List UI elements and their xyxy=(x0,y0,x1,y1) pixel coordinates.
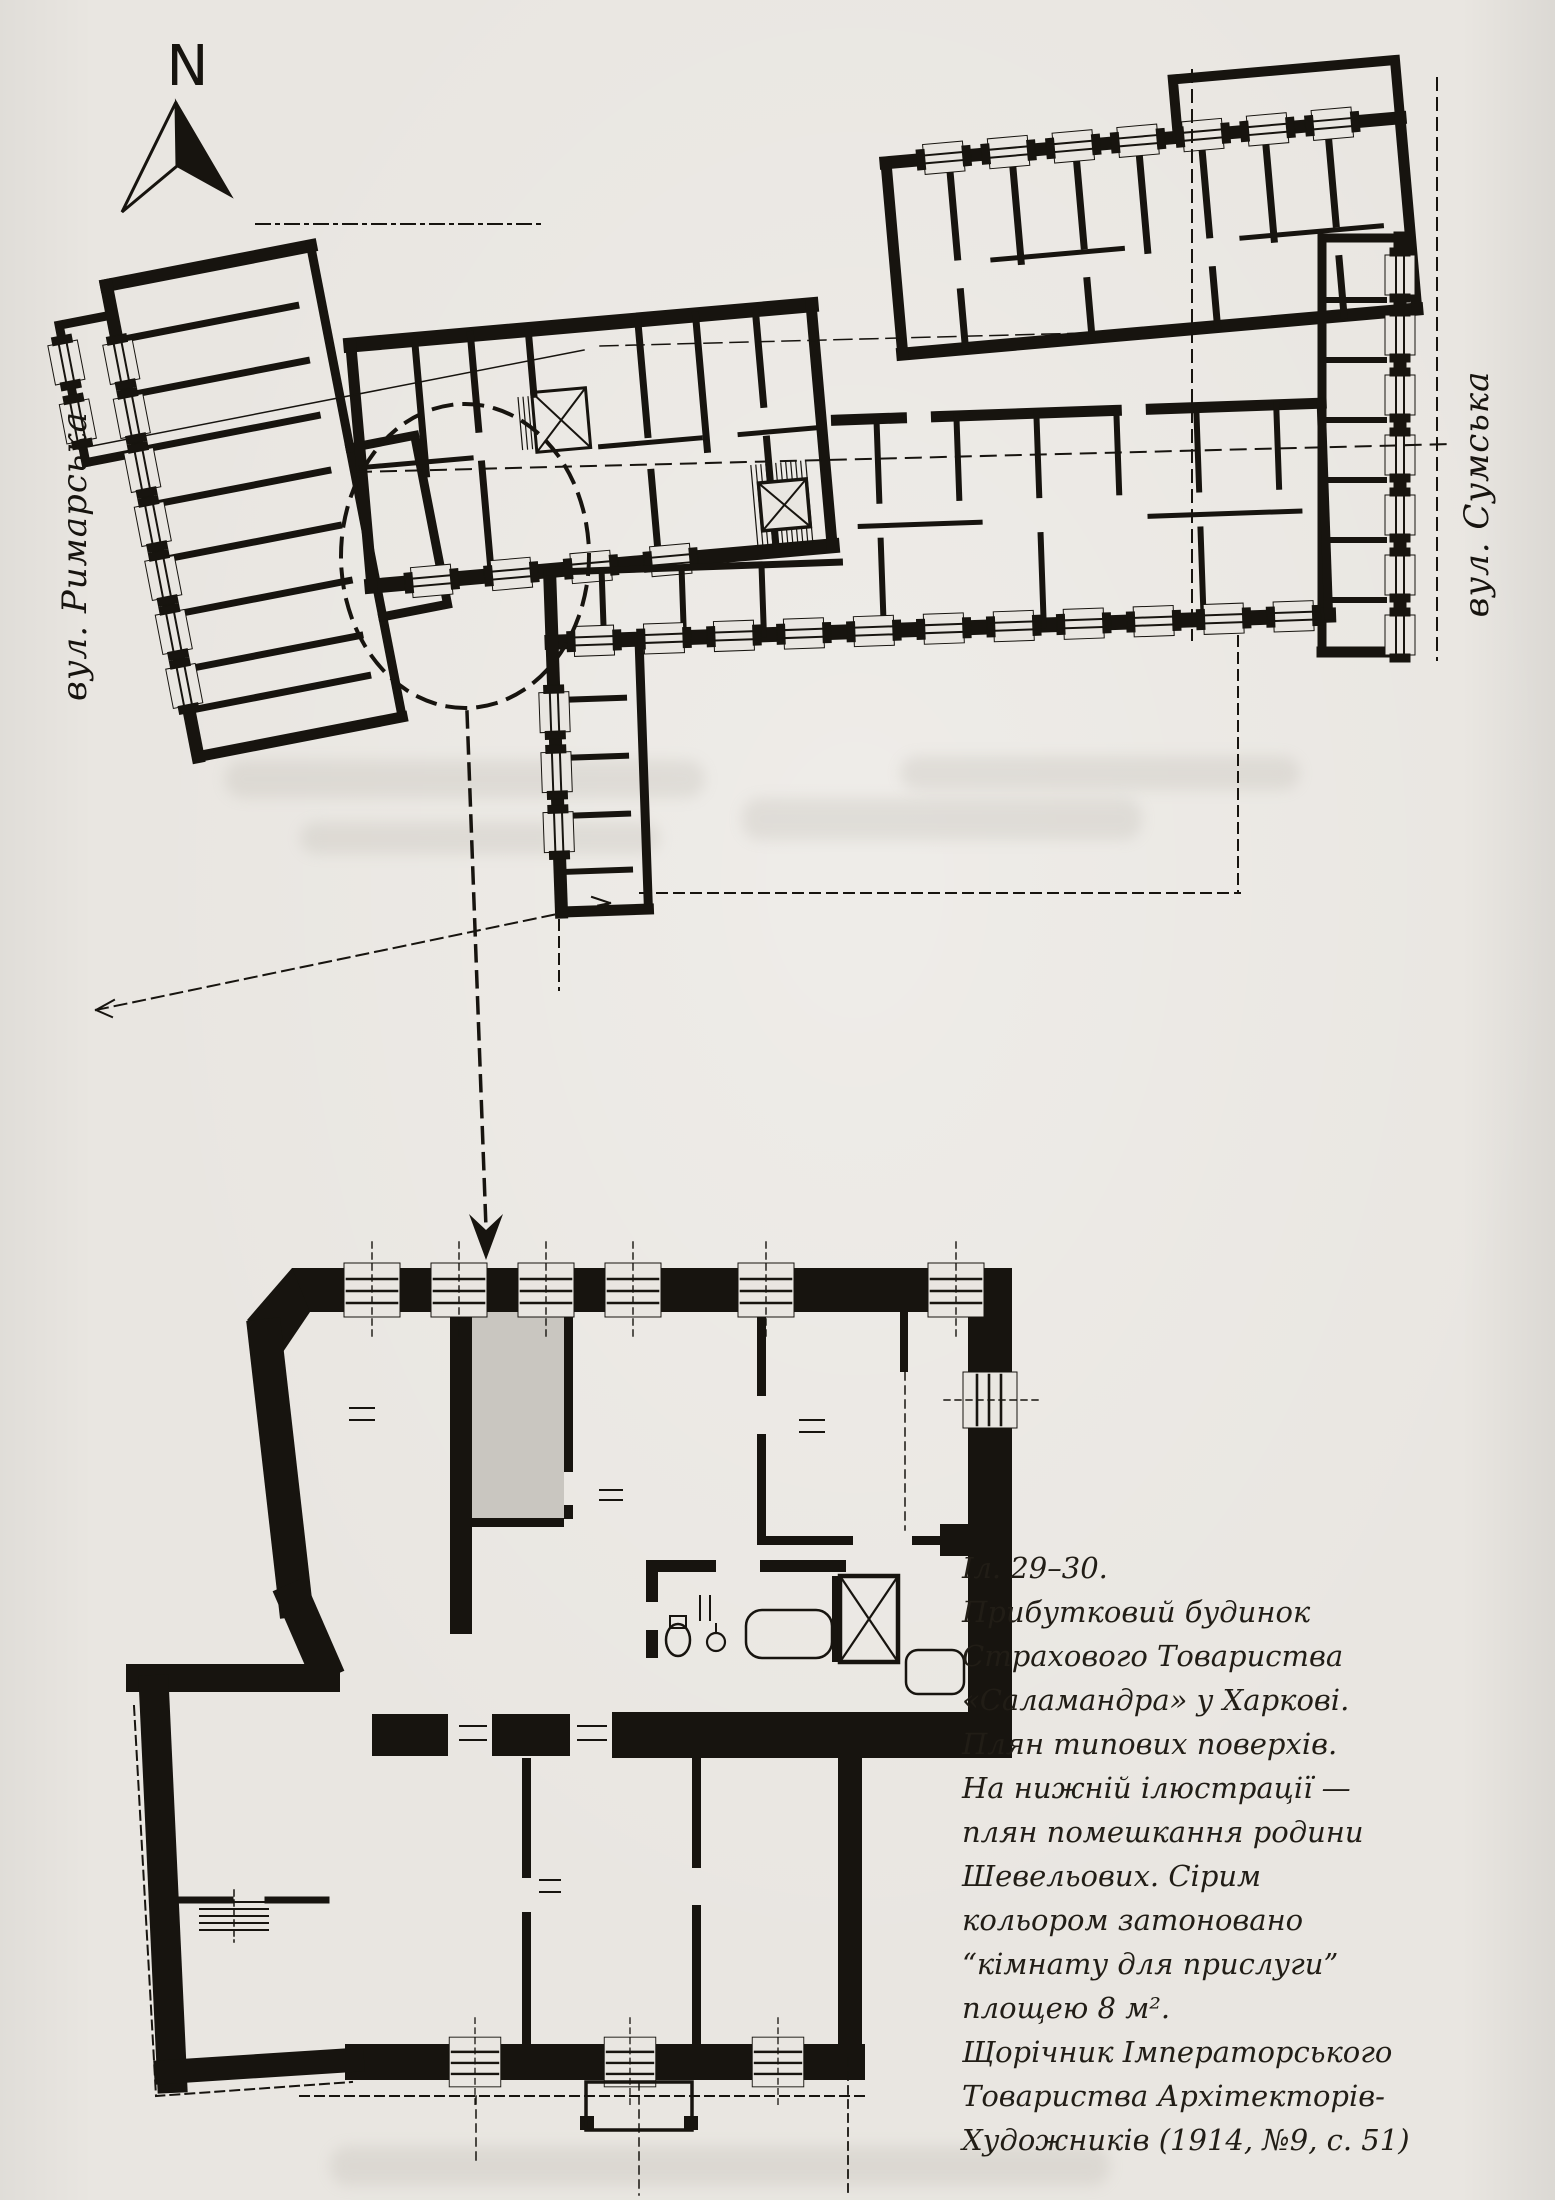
caption-line: Художників (1914, №9, с. 51) xyxy=(962,2118,1402,2162)
street-label-sumska: вул. Сумська xyxy=(1457,314,1497,674)
caption-line: Іл. 29–30. xyxy=(962,1546,1402,1590)
wing-north xyxy=(881,60,1417,354)
caption-line: “кімнату для прислуги” xyxy=(962,1942,1402,1986)
figure-caption: Іл. 29–30. Прибутковий будинок Страховог… xyxy=(962,1546,1402,2162)
staircase-hatch xyxy=(751,461,813,547)
caption-line: Прибутковий будинок xyxy=(962,1590,1402,1634)
caption-line: плян помешкання родини xyxy=(962,1810,1402,1854)
north-label: N xyxy=(148,34,228,99)
lower-apartment-plan xyxy=(134,1242,1038,2195)
caption-line: Шевельових. Сірим xyxy=(962,1854,1402,1898)
caption-line: Страхового Товариства xyxy=(962,1634,1402,1678)
shaded-servant-room xyxy=(472,1312,564,1518)
caption-line: Плян типових поверхів. xyxy=(962,1722,1402,1766)
wing-sumska xyxy=(1322,238,1415,662)
shower-tub-icon xyxy=(906,1650,964,1694)
caption-line: На нижній ілюстрації — xyxy=(962,1766,1402,1810)
caption-line: «Саламандра» у Харкові. xyxy=(962,1678,1402,1722)
north-arrow-icon xyxy=(122,102,231,212)
upper-site-plan xyxy=(39,60,1452,1260)
street-label-rymarska: вул. Римарська xyxy=(55,346,95,766)
caption-line: Щорічник Імператорського xyxy=(962,2030,1402,2074)
bathroom-fixtures xyxy=(666,1610,964,1694)
stair-shaft xyxy=(840,1576,898,1662)
book-page: N вул. Римарська вул. Сумська Іл. 29–30.… xyxy=(0,0,1555,2200)
bay-window xyxy=(586,2082,692,2195)
door-dashes xyxy=(350,1408,824,1892)
exterior-walls xyxy=(247,1268,1012,2130)
caption-line: Товариства Архітекторів- xyxy=(962,2074,1402,2118)
bathtub-icon xyxy=(746,1610,832,1658)
locator-arrow xyxy=(467,712,503,1260)
caption-line: площею 8 м². xyxy=(962,1986,1402,2030)
sink-icon xyxy=(707,1633,725,1651)
axis-lines xyxy=(82,70,1452,1017)
caption-line: кольором затоновано xyxy=(962,1898,1402,1942)
central-block xyxy=(351,305,834,601)
